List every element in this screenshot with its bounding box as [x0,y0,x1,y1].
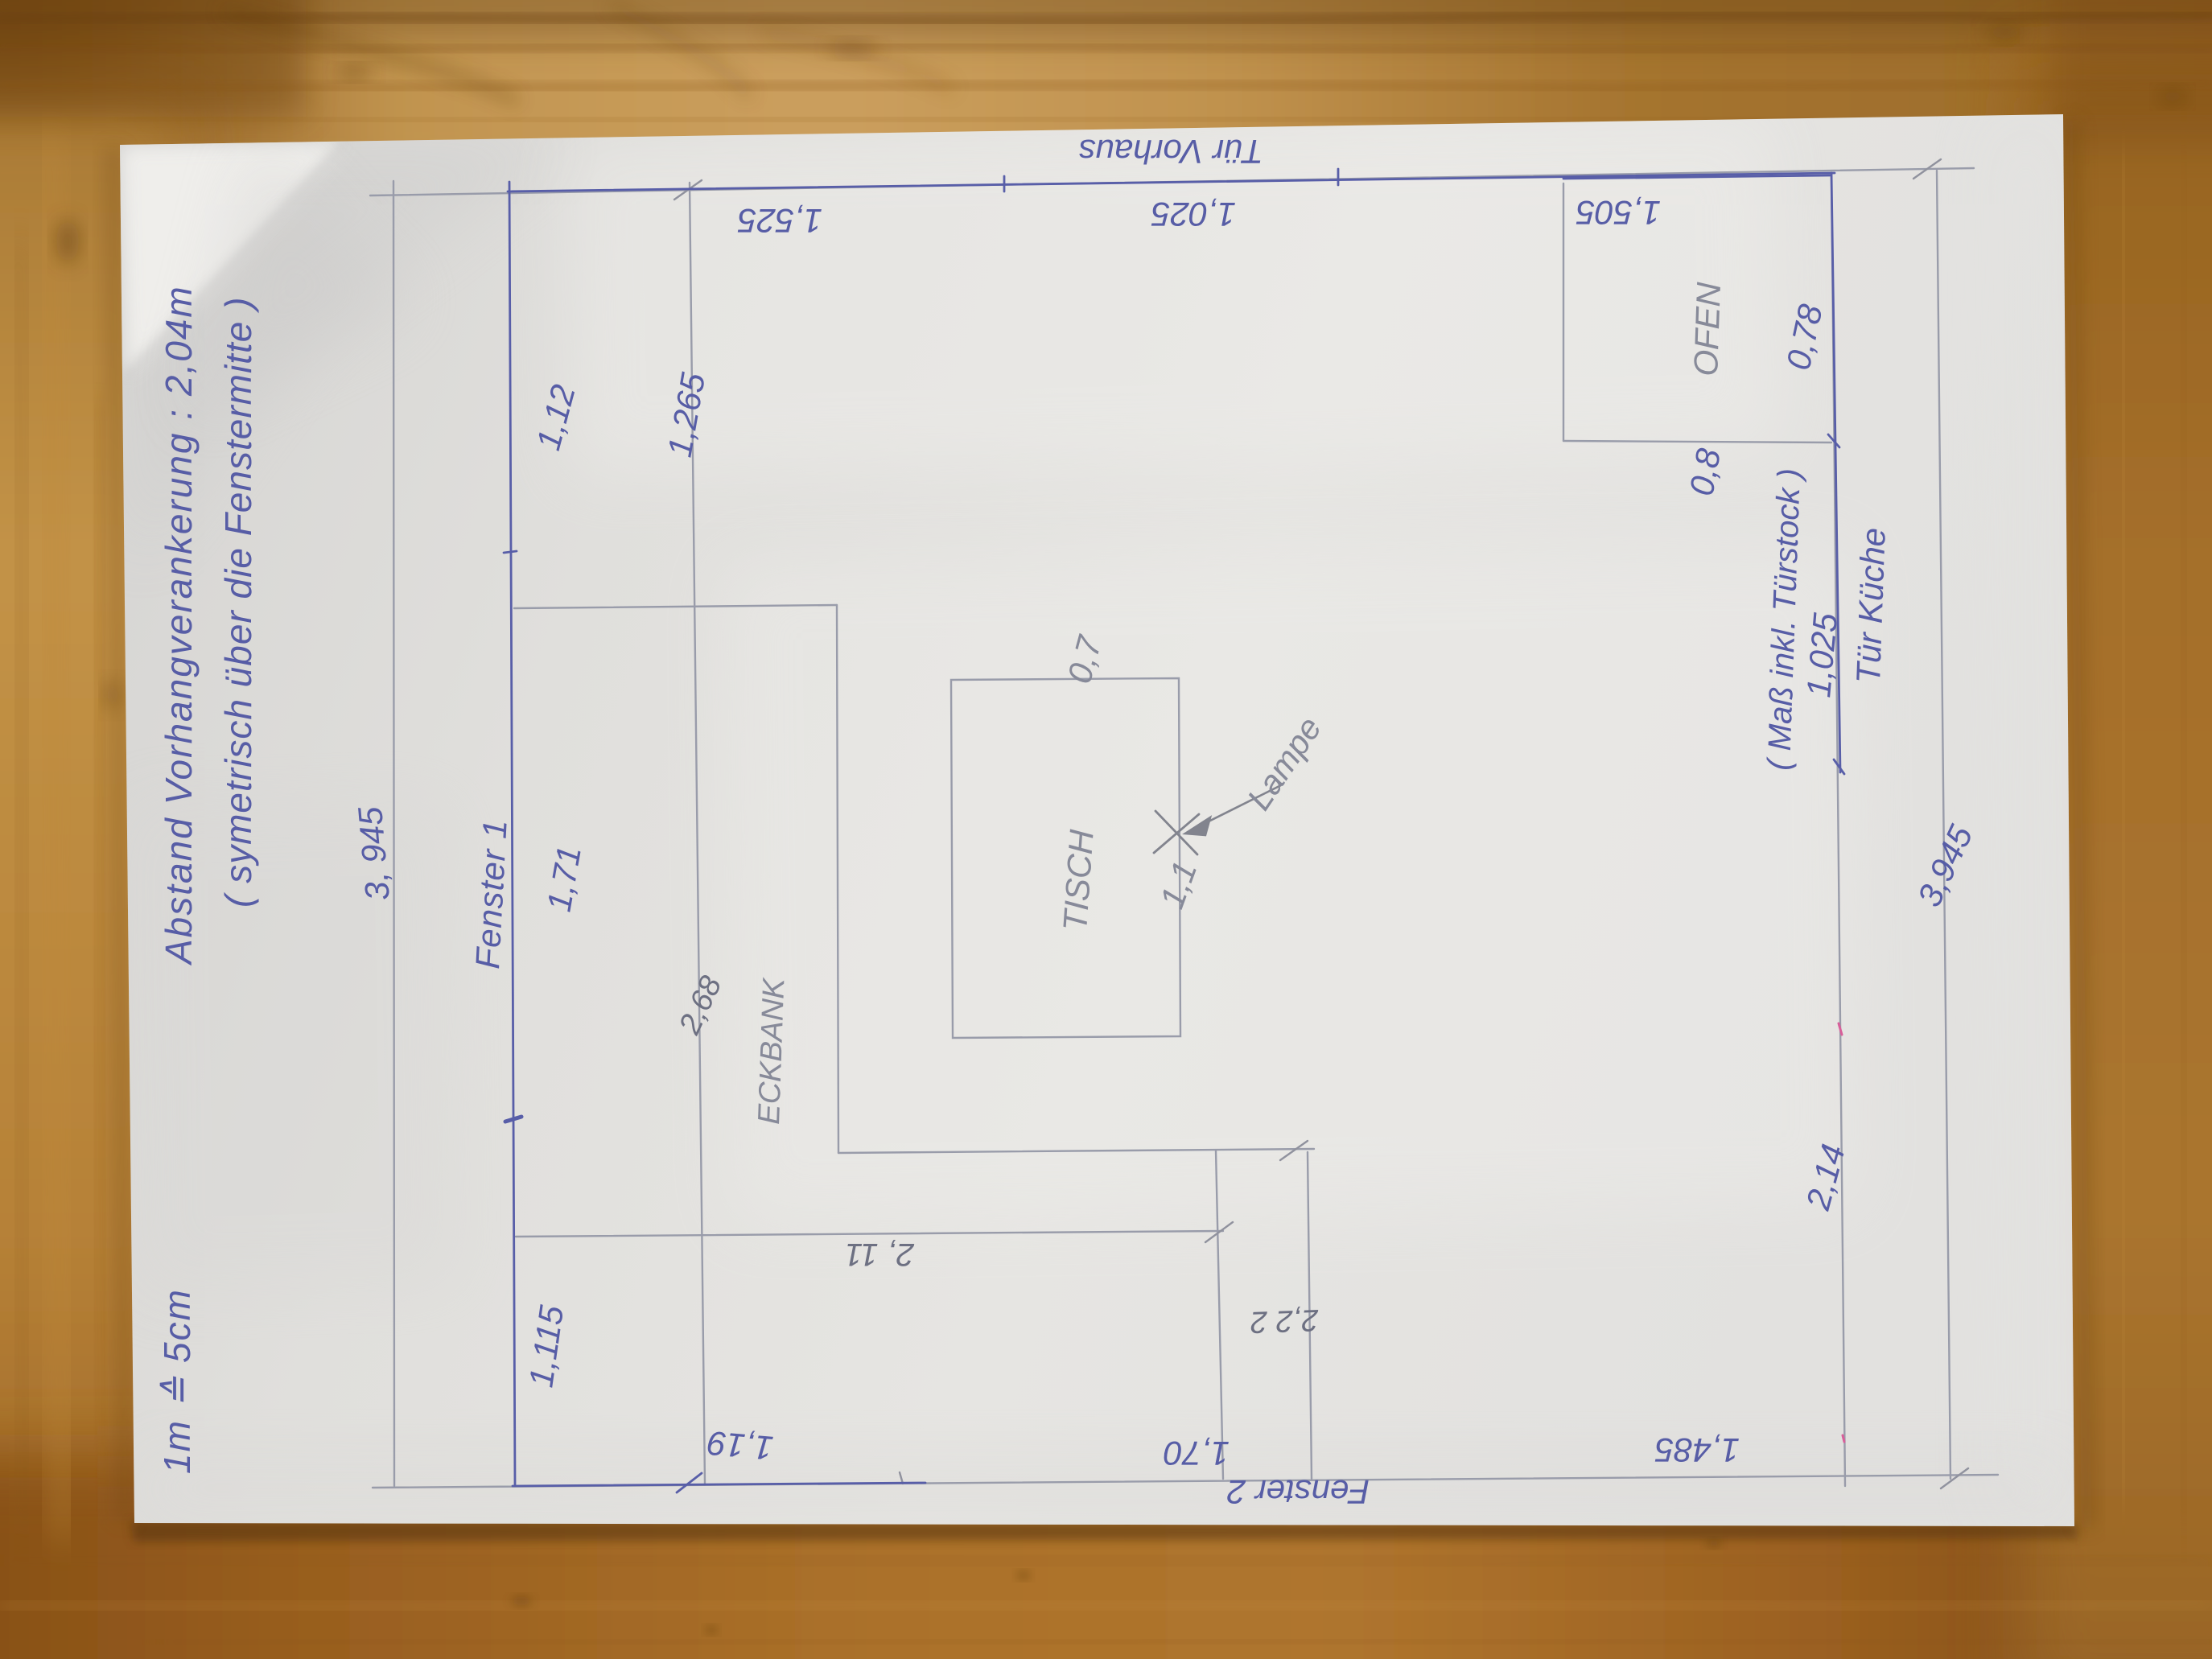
svg-text:Tür Vorhaus: Tür Vorhaus [1078,133,1263,171]
svg-text:Abstand Vorhangverankerung :: Abstand Vorhangverankerung : 2,04m [158,285,200,966]
svg-text:1,525: 1,525 [737,202,822,240]
svg-text:2, 11: 2, 11 [845,1237,915,1272]
svg-text:1,485: 1,485 [1654,1431,1740,1469]
svg-text:2,2 2: 2,2 2 [1250,1303,1320,1339]
svg-text:TISCH: TISCH [1056,828,1101,932]
svg-text:Fenster 1: Fenster 1 [468,818,514,970]
svg-text:1,19: 1,19 [706,1424,775,1468]
svg-text:1m ≙ 5cm: 1m ≙ 5cm [156,1288,198,1474]
svg-text:OFEN: OFEN [1687,281,1728,377]
svg-text:( symetrisch über die Fensterm: ( symetrisch über die Fenstermitte ) [217,297,259,908]
svg-text:Tür Küche: Tür Küche [1849,527,1893,684]
svg-text:1,505: 1,505 [1576,194,1661,232]
svg-text:1,025: 1,025 [1151,196,1236,233]
svg-text:ECKBANK: ECKBANK [752,977,791,1126]
svg-text:1,025: 1,025 [1799,611,1844,698]
svg-text:Fenster 2: Fenster 2 [1227,1473,1370,1511]
svg-text:1,70: 1,70 [1164,1435,1230,1472]
